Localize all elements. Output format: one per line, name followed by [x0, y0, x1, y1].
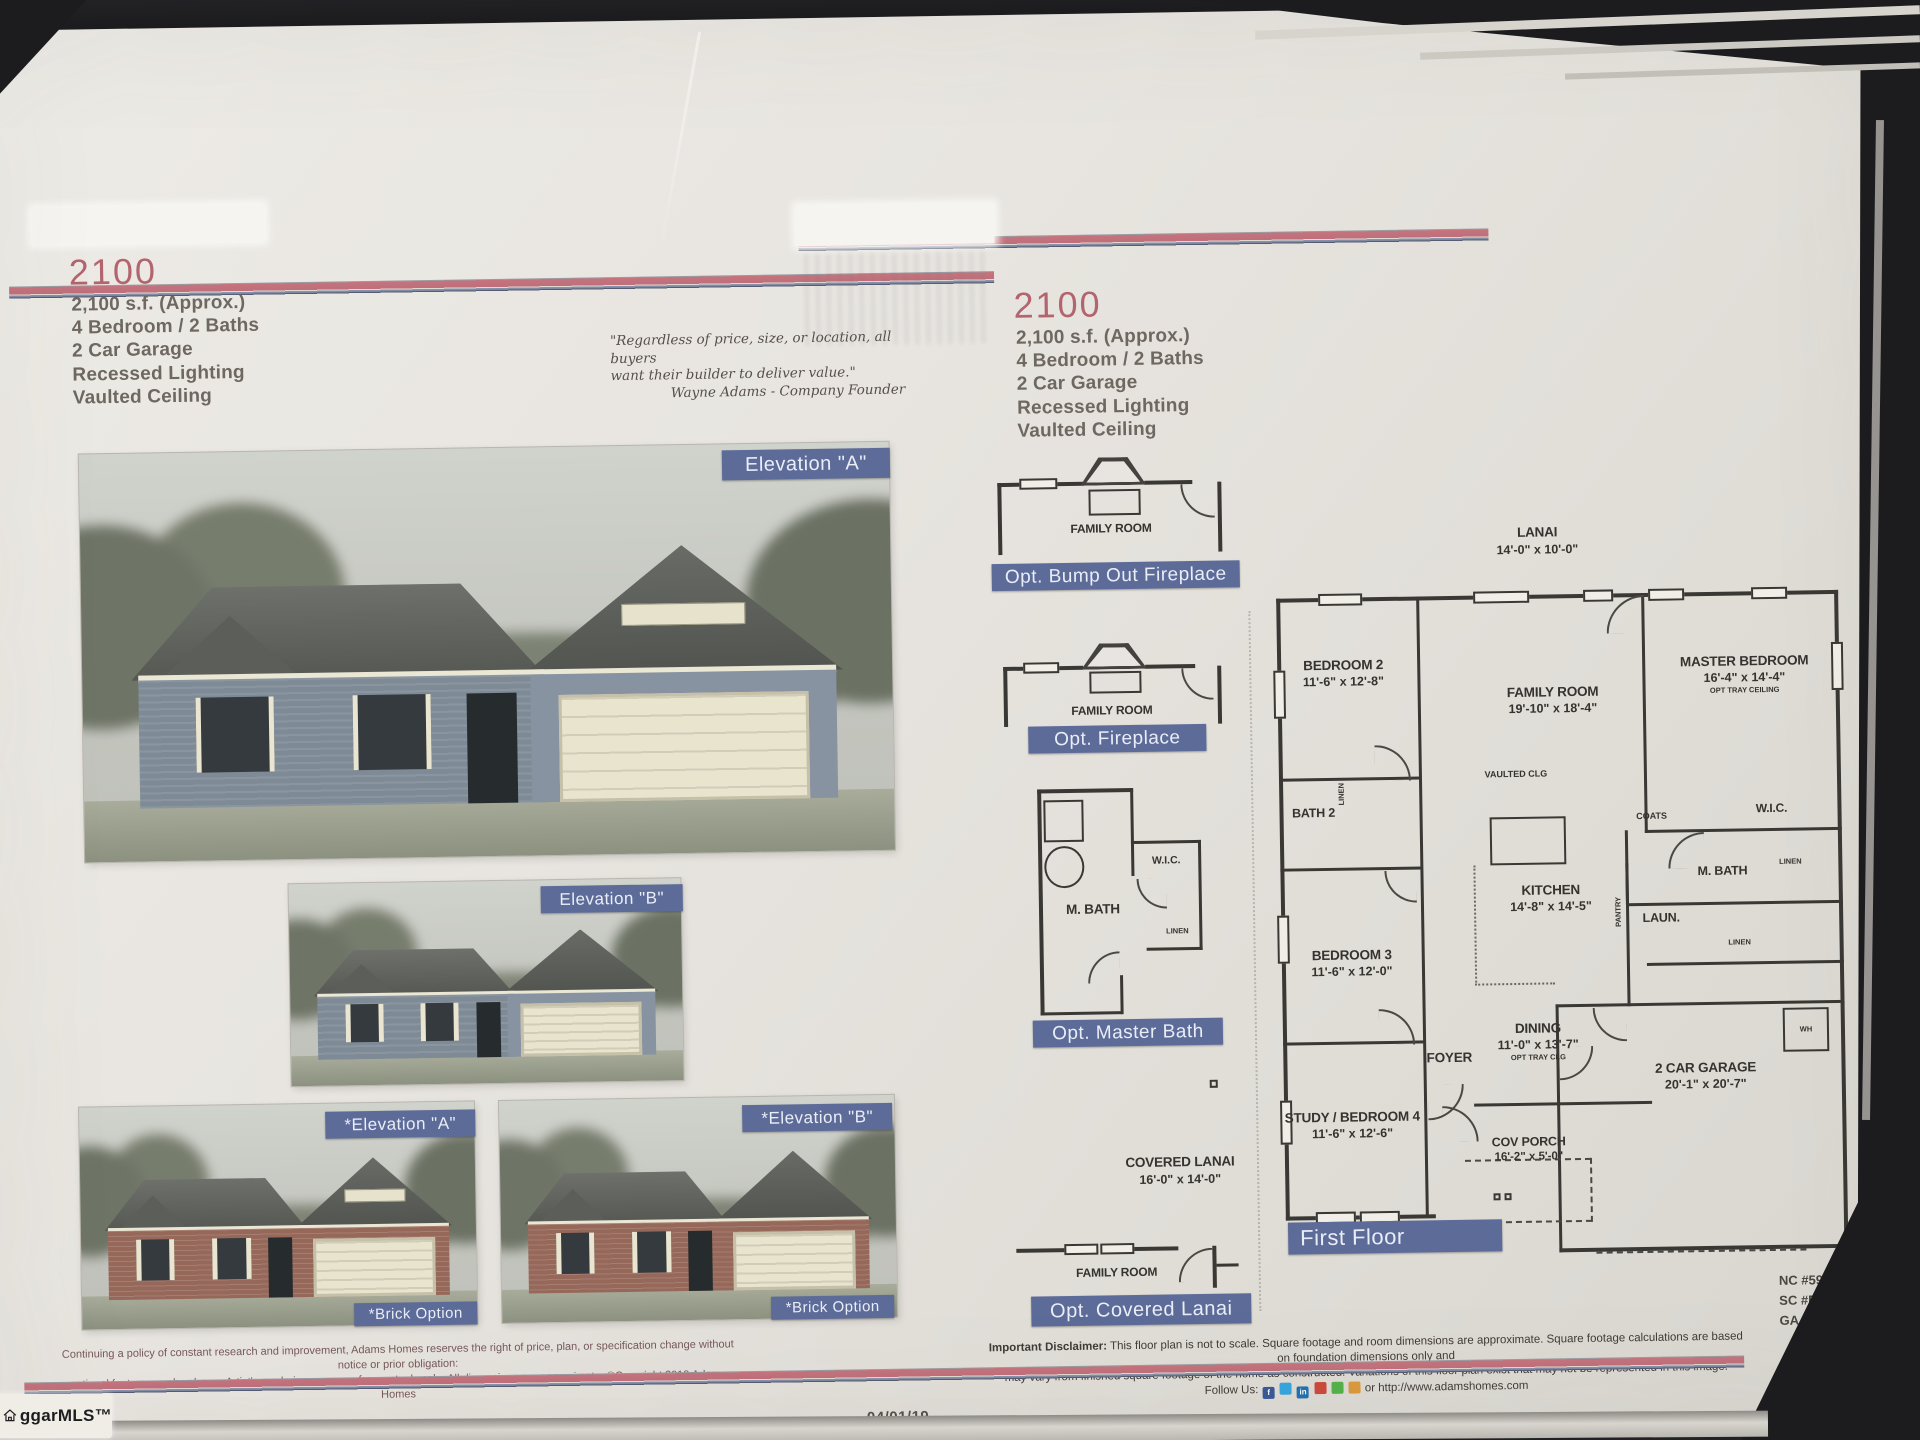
house-graphic	[523, 1131, 873, 1294]
follow-us-label: Follow Us:	[1205, 1384, 1259, 1397]
room-label: COV PORCH	[1492, 1134, 1566, 1149]
window-marker	[1648, 588, 1684, 601]
elevation-a-rendering	[79, 442, 895, 863]
door-arc	[1442, 1106, 1479, 1143]
spec-bed-bath: 4 Bedroom / 2 Baths	[72, 314, 260, 340]
elevation-b-brick-banner: *Elevation "B"	[742, 1103, 892, 1132]
room-label: 2 CAR GARAGE	[1655, 1059, 1756, 1076]
wall	[1134, 1246, 1178, 1251]
window	[136, 1239, 175, 1281]
door-arc	[1668, 832, 1705, 869]
post-marker	[1505, 1193, 1512, 1200]
hearth	[1089, 671, 1141, 694]
pantry-label: PANTRY	[1613, 897, 1622, 927]
post-marker	[1494, 1193, 1501, 1200]
quote-line1: "Regardless of price, size, or location,…	[610, 328, 911, 368]
room-label: BEDROOM 3	[1312, 947, 1392, 963]
room-label: FAMILY ROOM	[1076, 1265, 1157, 1280]
wall	[1212, 1246, 1217, 1288]
front-door	[688, 1231, 713, 1291]
wall	[1217, 666, 1222, 724]
model-number-left: 2100	[69, 250, 158, 293]
wall	[1556, 1000, 1845, 1008]
wall	[1198, 840, 1203, 950]
ceiling-note: OPT TRAY CEILING	[1710, 685, 1780, 695]
room-dims: 11'-6" x 12'-0"	[1311, 964, 1392, 979]
door-arc	[1180, 484, 1215, 519]
room-label: FAMILY ROOM	[1071, 703, 1152, 718]
door-arc	[1593, 1007, 1628, 1042]
door-arc	[1384, 871, 1416, 903]
garage-roof	[715, 1150, 872, 1222]
post-marker	[1210, 1080, 1218, 1088]
wall	[1131, 840, 1201, 844]
spec-garage: 2 Car Garage	[1017, 370, 1205, 396]
closet-label: LINEN	[1337, 783, 1346, 806]
window	[212, 1238, 251, 1280]
wall	[1625, 863, 1630, 1006]
window	[421, 1003, 460, 1041]
instagram-icon	[1348, 1381, 1360, 1393]
ceiling-note: VAULTED CLG	[1485, 768, 1548, 779]
room-dims: 19'-10" x 18'-4"	[1508, 701, 1597, 716]
brochure-photo: 2100 2,100 s.f. (Approx.) 4 Bedroom / 2 …	[0, 0, 1920, 1440]
wall	[1130, 788, 1134, 876]
spec-lighting: Recessed Lighting	[1017, 393, 1205, 419]
bath-fixture	[1044, 846, 1085, 889]
facebook-icon: f	[1263, 1386, 1275, 1398]
paper-crease	[660, 31, 702, 248]
brick-option-caption: *Brick Option	[771, 1295, 894, 1320]
wall	[1037, 788, 1133, 794]
room-label: LANAI	[1517, 524, 1557, 540]
opt-fireplace-banner: Opt. Fireplace	[1028, 724, 1206, 754]
gable-vent	[622, 602, 746, 626]
elevation-b-banner: Elevation "B"	[541, 884, 683, 913]
front-door	[476, 1002, 501, 1057]
linkedin-icon: in	[1297, 1386, 1309, 1398]
elevation-a-brick-banner: *Elevation "A"	[325, 1109, 475, 1138]
house-graphic	[128, 508, 845, 809]
room-label: DINING	[1515, 1020, 1561, 1036]
gable-vent	[344, 1188, 405, 1202]
window-marker	[1751, 587, 1787, 600]
whiteout-patch	[796, 203, 995, 246]
window	[556, 1233, 595, 1275]
garage-door	[733, 1230, 856, 1290]
window-marker	[1273, 671, 1286, 719]
room-label: BATH 2	[1292, 806, 1335, 821]
founder-quote: "Regardless of price, size, or location,…	[610, 328, 911, 403]
wall	[1217, 1263, 1239, 1266]
window-marker	[1831, 642, 1844, 690]
room-dims: 16'-2" x 5'-0"	[1494, 1150, 1563, 1163]
spec-lighting: Recessed Lighting	[72, 360, 260, 386]
spec-garage: 2 Car Garage	[72, 337, 260, 363]
wall	[1217, 482, 1222, 552]
brick-option-caption: *Brick Option	[354, 1301, 477, 1326]
brochure-sheet: 2100 2,100 s.f. (Approx.) 4 Bedroom / 2 …	[0, 1, 1905, 1439]
room-label: LAUN.	[1642, 910, 1679, 925]
room-label: FAMILY ROOM	[1507, 684, 1599, 700]
room-label: FOYER	[1426, 1050, 1472, 1066]
room-label: W.I.C.	[1152, 854, 1181, 866]
room-dims: 11'-6" x 12'-8"	[1303, 674, 1384, 689]
kitchen-island	[1490, 816, 1567, 865]
spec-sqft: 2,100 s.f. (Approx.)	[1016, 324, 1204, 350]
door-arc	[1374, 745, 1411, 782]
wall	[1647, 960, 1844, 966]
spec-ceiling: Vaulted Ceiling	[73, 383, 261, 409]
front-door	[268, 1237, 293, 1297]
room-label: LINEN	[1166, 926, 1189, 935]
garage-door	[521, 1001, 643, 1056]
window-marker	[1583, 589, 1613, 601]
room-label: FAMILY ROOM	[1070, 521, 1151, 536]
room-label: MASTER BEDROOM	[1680, 652, 1809, 669]
spec-bed-bath: 4 Bedroom / 2 Baths	[1016, 347, 1204, 373]
area-label: COVERED LANAI	[1125, 1153, 1234, 1170]
garage-roof	[502, 928, 658, 994]
house-graphic	[103, 1137, 453, 1300]
room-dims: 16'-4" x 14'-4"	[1703, 670, 1785, 685]
wall	[1147, 947, 1203, 951]
column-fold-line	[1248, 611, 1261, 1311]
house-icon	[2, 1403, 18, 1429]
elevation-a-banner: Elevation "A"	[722, 448, 890, 481]
closet-label: LINEN	[1728, 937, 1751, 946]
counter-line	[1475, 982, 1555, 985]
opt-master-bath-banner: Opt. Master Bath	[1033, 1018, 1223, 1048]
wall	[1041, 1011, 1123, 1015]
room-dims: 14'-0" x 10'-0"	[1496, 542, 1578, 557]
closet-label: LINEN	[1779, 857, 1802, 866]
whatsapp-icon	[1331, 1381, 1343, 1393]
window-marker	[1100, 1243, 1134, 1255]
room-dims: 14'-8" x 14'-5"	[1510, 899, 1592, 914]
area-dims: 16'-0" x 14'-0"	[1139, 1172, 1221, 1187]
google-icon	[1314, 1382, 1326, 1394]
website-url: or http://www.adamshomes.com	[1365, 1379, 1529, 1394]
ceiling-note: OPT TRAY CLG	[1511, 1052, 1566, 1062]
room-dims: 11'-6" x 12'-6"	[1312, 1126, 1393, 1141]
water-heater-label: WH	[1800, 1024, 1813, 1033]
room-dims: 20'-1" x 20'-7"	[1665, 1076, 1747, 1091]
door-arc	[1181, 668, 1213, 700]
door-arc	[1088, 951, 1120, 983]
spec-sqft: 2,100 s.f. (Approx.)	[71, 291, 259, 317]
door-arc	[1137, 878, 1167, 908]
window	[632, 1232, 671, 1274]
model-number-right: 2100	[1013, 283, 1102, 326]
room-label: STUDY / BEDROOM 4	[1285, 1109, 1420, 1126]
counter-line	[1473, 866, 1477, 986]
disclaimer-lead: Important Disclaimer:	[989, 1340, 1107, 1354]
wall	[1120, 975, 1124, 1014]
wall	[1626, 900, 1843, 906]
garage-door	[559, 691, 810, 802]
closet-label: W.I.C.	[1756, 801, 1788, 815]
wall	[1016, 1248, 1066, 1253]
window-marker	[1064, 1244, 1098, 1256]
room-label: M. BATH	[1066, 901, 1120, 917]
window-marker	[1023, 662, 1059, 674]
window-marker	[1473, 591, 1529, 604]
wall	[997, 483, 1002, 555]
opt-covered-lanai-banner: Opt. Covered Lanai	[1031, 1293, 1251, 1326]
window-marker	[1277, 916, 1290, 964]
first-floor-banner: First Floor	[1288, 1219, 1502, 1254]
front-door	[466, 693, 518, 804]
hearth	[1088, 489, 1140, 516]
room-dims: 11'-0" x 13'-7"	[1498, 1037, 1579, 1052]
house-graphic	[313, 911, 660, 1060]
room-label: KITCHEN	[1521, 882, 1580, 898]
watermark-text: ggarMLS™	[20, 1406, 112, 1426]
window	[352, 694, 432, 771]
closet-label: COATS	[1636, 811, 1667, 821]
door-arc	[1379, 1009, 1416, 1046]
spec-list-left: 2,100 s.f. (Approx.) 4 Bedroom / 2 Baths…	[71, 291, 260, 410]
opt-bump-out-fireplace-banner: Opt. Bump Out Fireplace	[992, 560, 1240, 591]
wall	[1003, 667, 1008, 727]
room-label: BEDROOM 2	[1303, 657, 1383, 673]
bath-fixture	[1043, 800, 1084, 843]
window-marker	[1019, 478, 1057, 490]
wall	[1474, 1101, 1652, 1107]
twitter-icon	[1280, 1382, 1292, 1394]
window	[345, 1004, 384, 1042]
garage-door	[313, 1237, 436, 1297]
room-label: M. BATH	[1697, 863, 1747, 878]
rendering-scene	[79, 442, 895, 863]
wall	[1645, 827, 1842, 833]
porch-outline	[1590, 1158, 1593, 1222]
mls-watermark: ggarMLS™	[0, 1394, 112, 1438]
spec-ceiling: Vaulted Ceiling	[1017, 417, 1205, 443]
window-marker	[1318, 593, 1362, 606]
whiteout-patch	[32, 205, 265, 245]
door-arc	[1178, 1248, 1213, 1283]
window	[195, 696, 275, 773]
spec-list-right: 2,100 s.f. (Approx.) 4 Bedroom / 2 Baths…	[1016, 324, 1205, 443]
